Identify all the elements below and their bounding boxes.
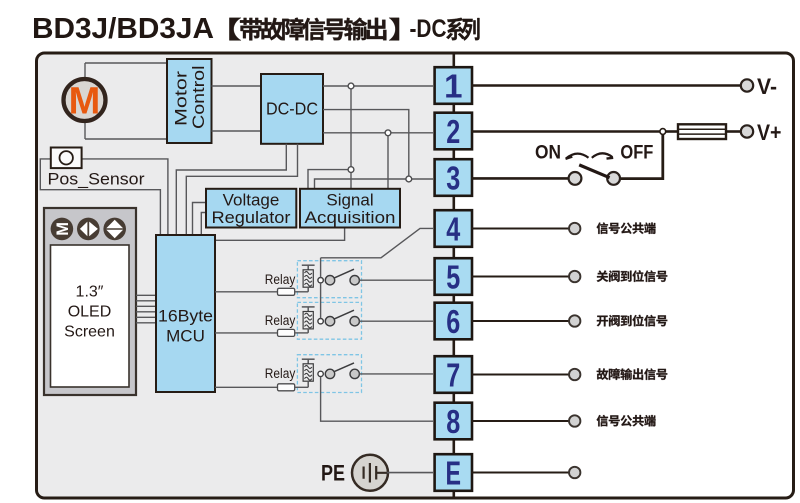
svg-text:Control: Control <box>189 66 208 130</box>
svg-text:Voltage: Voltage <box>223 191 280 210</box>
svg-text:BD3J/BD3JA: BD3J/BD3JA <box>32 13 214 45</box>
svg-text:E: E <box>446 455 462 492</box>
svg-text:V+: V+ <box>757 120 782 145</box>
svg-text:Relay: Relay <box>265 366 296 381</box>
svg-text:M: M <box>69 81 101 123</box>
svg-text:4: 4 <box>446 211 460 248</box>
svg-text:8: 8 <box>446 403 460 440</box>
svg-text:1.3″: 1.3″ <box>76 284 104 301</box>
svg-text:Screen: Screen <box>64 324 115 341</box>
svg-text:M: M <box>54 222 72 236</box>
svg-text:OLED: OLED <box>68 304 112 321</box>
svg-text:MCU: MCU <box>166 326 205 345</box>
svg-text:ON: ON <box>535 143 561 164</box>
svg-text:-DC: -DC <box>410 15 447 43</box>
svg-text:1: 1 <box>444 68 462 105</box>
svg-text:Relay: Relay <box>265 313 296 328</box>
svg-text:Pos_Sensor: Pos_Sensor <box>48 170 146 188</box>
svg-text:OFF: OFF <box>620 143 653 164</box>
svg-text:Signal: Signal <box>326 191 373 210</box>
svg-text:Acquisition: Acquisition <box>305 208 396 227</box>
svg-text:Relay: Relay <box>265 272 296 287</box>
svg-text:DC-DC: DC-DC <box>266 99 318 119</box>
svg-text:2: 2 <box>446 113 460 150</box>
svg-text:5: 5 <box>446 259 460 296</box>
svg-text:7: 7 <box>446 357 460 394</box>
svg-text:16Byte: 16Byte <box>158 306 213 325</box>
svg-text:3: 3 <box>446 160 460 197</box>
svg-text:PE: PE <box>321 460 345 485</box>
svg-text:6: 6 <box>446 303 460 340</box>
svg-text:Motor: Motor <box>172 71 191 126</box>
svg-text:V-: V- <box>757 74 777 99</box>
svg-text:Regulator: Regulator <box>212 208 291 227</box>
